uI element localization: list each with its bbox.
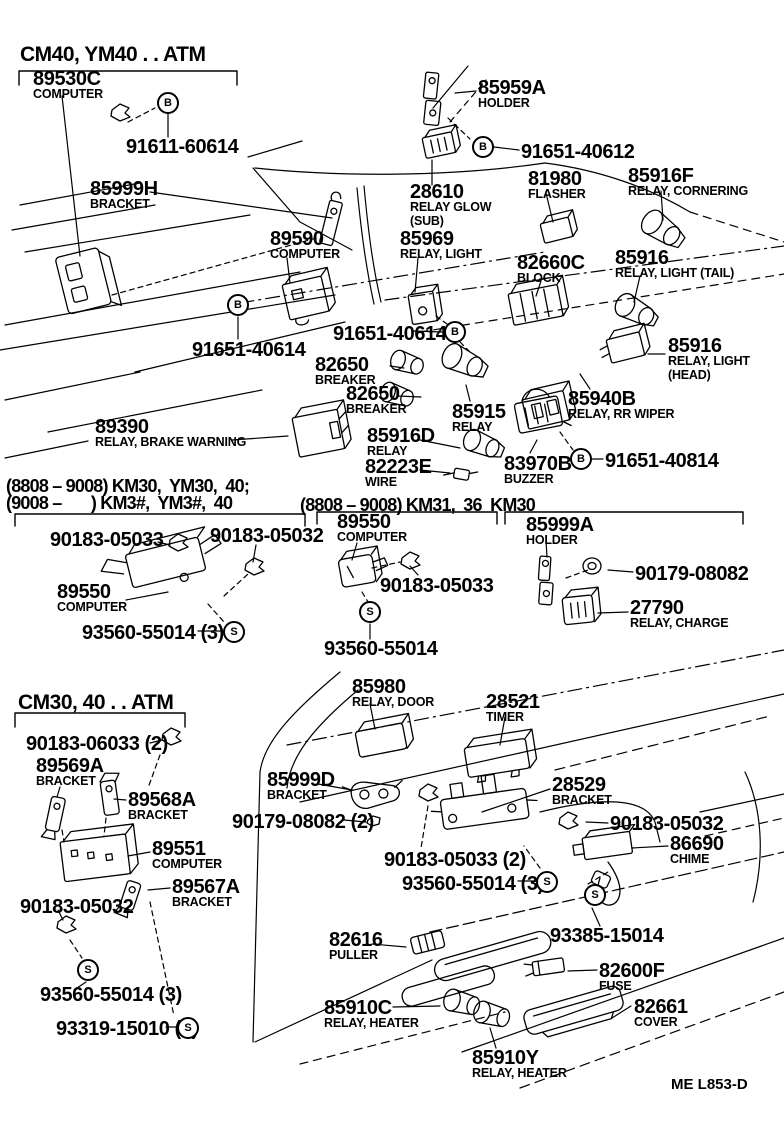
part-82223e-line-0: 82223E <box>365 458 432 476</box>
part-82650-b-line-1: BREAKER <box>346 403 406 417</box>
section-header-cm30-atm-line-0: CM30, 40 . . ATM <box>18 692 173 713</box>
part-28521-line-1: TIMER <box>486 711 540 725</box>
socket-85910c-glyph <box>441 987 481 1018</box>
part-91651-40814: 91651-40814 <box>605 452 719 470</box>
part-90183-05033-l-line-0: 90183-05033 <box>50 531 164 549</box>
clip-90183-05032-bl-glyph <box>57 916 76 933</box>
wire-82223e-glyph <box>443 466 477 482</box>
part-89568a: 89568ABRACKET <box>128 791 196 823</box>
relay-27790-glyph <box>561 587 601 625</box>
part-86690-line-1: CHIME <box>670 853 724 867</box>
part-85916-tail: 85916RELAY, LIGHT (TAIL) <box>615 249 734 281</box>
part-90183-06033-line-0: 90183-06033 (2) <box>26 735 168 753</box>
section-header-km31: (8808 – 9008) KM31, 36 KM30 <box>300 496 535 514</box>
part-85916-head: 85916RELAY, LIGHT(HEAD) <box>668 337 750 382</box>
part-89550-mid-line-1: COMPUTER <box>337 531 407 545</box>
part-85916-tail-line-1: RELAY, LIGHT (TAIL) <box>615 267 734 281</box>
part-82661-line-0: 82661 <box>634 998 688 1016</box>
part-89390-line-0: 89390 <box>95 418 246 436</box>
part-93385-15014-line-0: 93385-15014 <box>550 927 664 945</box>
drawing-code-line-0: ME L853-D <box>671 1077 748 1092</box>
part-90183-05032-l-line-0: 90183-05032 <box>210 527 324 545</box>
part-85999h-line-0: 85999H <box>90 180 158 198</box>
part-85980-line-0: 85980 <box>352 678 434 696</box>
clip-90183-05032-l-glyph <box>245 558 264 575</box>
part-91651-40612-line-0: 91651-40612 <box>521 143 635 161</box>
part-90179-08082-2-line-0: 90179-08082 (2) <box>232 813 374 831</box>
part-82223e: 82223EWIRE <box>365 458 432 490</box>
part-85999d-line-0: 85999D <box>267 771 335 789</box>
part-82600f-line-0: 82600F <box>599 962 664 980</box>
clip-90183-05033-2-glyph <box>419 784 438 801</box>
part-85916d-line-0: 85916D <box>367 427 435 445</box>
parts-diagram-page: CM40, YM40 . . ATM89530CCOMPUTER91611-60… <box>0 0 784 1128</box>
part-90179-08082-line-0: 90179-08082 <box>635 565 749 583</box>
fuse-82600f-glyph <box>524 958 565 977</box>
part-85916-head-line-2: (HEAD) <box>668 369 750 383</box>
part-85959a-line-1: HOLDER <box>478 97 546 111</box>
part-28521: 28521TIMER <box>486 693 540 725</box>
part-85969: 85969RELAY, LIGHT <box>400 230 482 262</box>
section-header-cm40-atm-line-0: CM40, YM40 . . ATM <box>20 44 206 65</box>
bolt-symbol-b2: B <box>472 136 494 158</box>
part-85916-tail-line-0: 85916 <box>615 249 734 267</box>
part-85980-line-1: RELAY, DOOR <box>352 696 434 710</box>
section-header-cm30-atm: CM30, 40 . . ATM <box>18 692 173 713</box>
part-28521-line-0: 28521 <box>486 693 540 711</box>
part-86690: 86690CHIME <box>670 835 724 867</box>
part-85999a-line-1: HOLDER <box>526 534 594 548</box>
part-85916f-line-1: RELAY, CORNERING <box>628 185 748 199</box>
part-93560-55014-l-line-0: 93560-55014 (3) <box>82 624 224 642</box>
part-90183-05032-l: 90183-05032 <box>210 527 324 545</box>
relay-85916-head-glyph <box>597 323 652 365</box>
part-82660c-line-1: BLOCK <box>517 272 585 286</box>
part-93385-15014: 93385-15014 <box>550 927 664 945</box>
part-89550-left: 89550COMPUTER <box>57 583 127 615</box>
part-89590-line-1: COMPUTER <box>270 248 340 262</box>
part-82600f: 82600FFUSE <box>599 962 664 994</box>
part-85969-line-1: RELAY, LIGHT <box>400 248 482 262</box>
timer-28521-glyph <box>463 729 539 783</box>
part-85959a: 85959AHOLDER <box>478 79 546 111</box>
part-82650-b: 82650BREAKER <box>346 385 406 417</box>
section-header-km31-line-0: (8808 – 9008) KM31, 36 KM30 <box>300 496 535 514</box>
bracket-28529-glyph <box>428 769 540 831</box>
part-85910y: 85910YRELAY, HEATER <box>472 1049 567 1081</box>
part-85999a-line-0: 85999A <box>526 516 594 534</box>
bolt-symbol-b3: B <box>227 294 249 316</box>
part-28529-line-1: BRACKET <box>552 794 612 808</box>
socket-85915-glyph <box>438 340 491 383</box>
screw-symbol-s2: S <box>359 601 381 623</box>
part-91651-40614-b: 91651-40614 <box>192 341 306 359</box>
screw-symbol-s4: S <box>584 884 606 906</box>
part-89390-line-1: RELAY, BRAKE WARNING <box>95 436 246 450</box>
bolt-symbol-b5: B <box>570 448 592 470</box>
clip-glyph-tl <box>111 104 130 121</box>
holder-85999a-glyph <box>537 556 555 605</box>
part-82600f-line-1: FUSE <box>599 980 664 994</box>
part-85959a-line-0: 85959A <box>478 79 546 97</box>
section-header-cm40-atm: CM40, YM40 . . ATM <box>20 44 206 65</box>
part-89551: 89551COMPUTER <box>152 840 222 872</box>
part-85910c-line-0: 85910C <box>324 999 419 1017</box>
screw-symbol-s3: S <box>536 871 558 893</box>
part-89590: 89590COMPUTER <box>270 230 340 262</box>
part-91651-40614-a: 91651-40614 <box>333 325 447 343</box>
part-85910y-line-0: 85910Y <box>472 1049 567 1067</box>
part-89551-line-0: 89551 <box>152 840 222 858</box>
part-82660c: 82660CBLOCK <box>517 254 585 286</box>
part-85915-line-1: RELAY <box>452 421 506 435</box>
part-89530c-line-0: 89530C <box>33 70 103 88</box>
part-89550-left-line-0: 89550 <box>57 583 127 601</box>
part-90183-05033-l: 90183-05033 <box>50 531 164 549</box>
part-93560-55014-3m: 93560-55014 (3) <box>402 875 544 893</box>
part-82660c-line-0: 82660C <box>517 254 585 272</box>
part-89569a-line-0: 89569A <box>36 757 104 775</box>
part-89390: 89390RELAY, BRAKE WARNING <box>95 418 246 450</box>
part-81980-line-0: 81980 <box>528 170 586 188</box>
part-85915-line-0: 85915 <box>452 403 506 421</box>
computer-89530c-glyph <box>55 245 121 318</box>
part-89530c: 89530CCOMPUTER <box>33 70 103 102</box>
screw-symbol-s6: S <box>177 1017 199 1039</box>
part-82616-line-1: PULLER <box>329 949 383 963</box>
part-85916-head-line-1: RELAY, LIGHT <box>668 355 750 369</box>
part-28610: 28610RELAY GLOW(SUB) <box>410 183 491 228</box>
part-28610-line-2: (SUB) <box>410 215 491 229</box>
clip-90183-05033-l-glyph <box>169 534 188 551</box>
part-83970b-line-0: 83970B <box>504 455 572 473</box>
part-89550-mid-line-0: 89550 <box>337 513 407 531</box>
flasher-81980-glyph <box>539 210 579 244</box>
part-90183-05032-bl: 90183-05032 <box>20 898 134 916</box>
part-85915: 85915RELAY <box>452 403 506 435</box>
breaker-a-glyph <box>388 348 426 377</box>
part-28529: 28529BRACKET <box>552 776 612 808</box>
part-85910y-line-1: RELAY, HEATER <box>472 1067 567 1081</box>
part-91651-40814-line-0: 91651-40814 <box>605 452 719 470</box>
part-81980: 81980FLASHER <box>528 170 586 202</box>
part-89569a-line-1: BRACKET <box>36 775 104 789</box>
part-89550-mid: 89550COMPUTER <box>337 513 407 545</box>
part-90179-08082-2: 90179-08082 (2) <box>232 813 374 831</box>
part-90183-05032-m: 90183-05032 <box>610 815 724 833</box>
part-85980: 85980RELAY, DOOR <box>352 678 434 710</box>
relay-28610-glyph <box>421 125 462 159</box>
puller-82616-glyph <box>410 930 445 954</box>
part-90183-06033: 90183-06033 (2) <box>26 735 168 753</box>
part-89568a-line-0: 89568A <box>128 791 196 809</box>
part-85999h-line-1: BRACKET <box>90 198 158 212</box>
part-82650-b-line-0: 82650 <box>346 385 406 403</box>
bolt-symbol-b4: B <box>444 321 466 343</box>
part-90179-08082: 90179-08082 <box>635 565 749 583</box>
computer-89551-glyph <box>59 824 139 882</box>
part-93560-55014-bl: 93560-55014 (3) <box>40 986 182 1004</box>
part-85910c: 85910CRELAY, HEATER <box>324 999 419 1031</box>
part-89590-line-0: 89590 <box>270 230 340 248</box>
part-82650-a-line-0: 82650 <box>315 356 375 374</box>
part-85999d-line-1: BRACKET <box>267 789 335 803</box>
relay-89390-glyph <box>290 400 352 457</box>
part-85910c-line-1: RELAY, HEATER <box>324 1017 419 1031</box>
part-90183-05033-m: 90183-05033 <box>380 577 494 595</box>
grommet-90179-glyph <box>583 558 601 574</box>
clip-90183-05032-m-glyph <box>559 812 578 829</box>
part-27790-line-1: RELAY, CHARGE <box>630 617 728 631</box>
part-90183-05032-bl-line-0: 90183-05032 <box>20 898 134 916</box>
part-82616: 82616PULLER <box>329 931 383 963</box>
section-header-km30-range2: (9008 – ) KM3#, YM3#, 40 <box>6 494 232 512</box>
part-83970b-line-1: BUZZER <box>504 473 572 487</box>
part-85916f-line-0: 85916F <box>628 167 748 185</box>
section-header-km30-range2-line-0: (9008 – ) KM3#, YM3#, 40 <box>6 494 232 512</box>
part-85916d: 85916DRELAY <box>367 427 435 459</box>
part-89568a-line-1: BRACKET <box>128 809 196 823</box>
part-85940b-line-1: RELAY, RR WIPER <box>568 408 674 422</box>
part-82661-line-1: COVER <box>634 1016 688 1030</box>
part-89567a-line-0: 89567A <box>172 878 240 896</box>
part-85999a: 85999AHOLDER <box>526 516 594 548</box>
part-91611-60614: 91611-60614 <box>126 138 238 156</box>
part-93560-55014-bl-line-0: 93560-55014 (3) <box>40 986 182 1004</box>
part-89530c-line-1: COMPUTER <box>33 88 103 102</box>
part-93560-55014-m-line-0: 93560-55014 <box>324 640 438 658</box>
part-81980-line-1: FLASHER <box>528 188 586 202</box>
part-28529-line-0: 28529 <box>552 776 612 794</box>
part-89550-left-line-1: COMPUTER <box>57 601 127 615</box>
part-93560-55014-3m-line-0: 93560-55014 (3) <box>402 875 544 893</box>
part-83970b: 83970BBUZZER <box>504 455 572 487</box>
part-28610-line-1: RELAY GLOW <box>410 201 491 215</box>
part-91651-40612: 91651-40612 <box>521 143 635 161</box>
relay-85969-glyph <box>407 284 443 324</box>
part-93560-55014-l: 93560-55014 (3) <box>82 624 224 642</box>
bracket-85999d-glyph <box>342 778 404 811</box>
part-89567a-line-1: BRACKET <box>172 896 240 910</box>
part-85940b-line-0: 85940B <box>568 390 674 408</box>
part-90183-05032-m-line-0: 90183-05032 <box>610 815 724 833</box>
part-90183-05033-m-line-0: 90183-05033 <box>380 577 494 595</box>
part-89569a: 89569ABRACKET <box>36 757 104 789</box>
part-85916f: 85916FRELAY, CORNERING <box>628 167 748 199</box>
part-28610-line-0: 28610 <box>410 183 491 201</box>
part-82223e-line-1: WIRE <box>365 476 432 490</box>
relay-85980-glyph <box>353 713 414 757</box>
part-85999h: 85999HBRACKET <box>90 180 158 212</box>
part-82661: 82661COVER <box>634 998 688 1030</box>
part-93560-55014-m: 93560-55014 <box>324 640 438 658</box>
part-91651-40614-b-line-0: 91651-40614 <box>192 341 306 359</box>
part-89551-line-1: COMPUTER <box>152 858 222 872</box>
part-91611-60614-line-0: 91611-60614 <box>126 138 238 156</box>
part-90183-05033-2: 90183-05033 (2) <box>384 851 526 869</box>
part-85916-head-line-0: 85916 <box>668 337 750 355</box>
part-85999d: 85999DBRACKET <box>267 771 335 803</box>
screw-symbol-s1: S <box>223 621 245 643</box>
drawing-code: ME L853-D <box>671 1077 748 1092</box>
part-86690-line-0: 86690 <box>670 835 724 853</box>
part-85969-line-0: 85969 <box>400 230 482 248</box>
part-85940b: 85940BRELAY, RR WIPER <box>568 390 674 422</box>
part-91651-40614-a-line-0: 91651-40614 <box>333 325 447 343</box>
part-82616-line-0: 82616 <box>329 931 383 949</box>
part-90183-05033-2-line-0: 90183-05033 (2) <box>384 851 526 869</box>
part-89567a: 89567ABRACKET <box>172 878 240 910</box>
socket-85910y-glyph <box>471 999 511 1030</box>
screw-symbol-s5: S <box>77 959 99 981</box>
bolt-symbol-b1: B <box>157 92 179 114</box>
part-27790: 27790RELAY, CHARGE <box>630 599 728 631</box>
part-27790-line-0: 27790 <box>630 599 728 617</box>
